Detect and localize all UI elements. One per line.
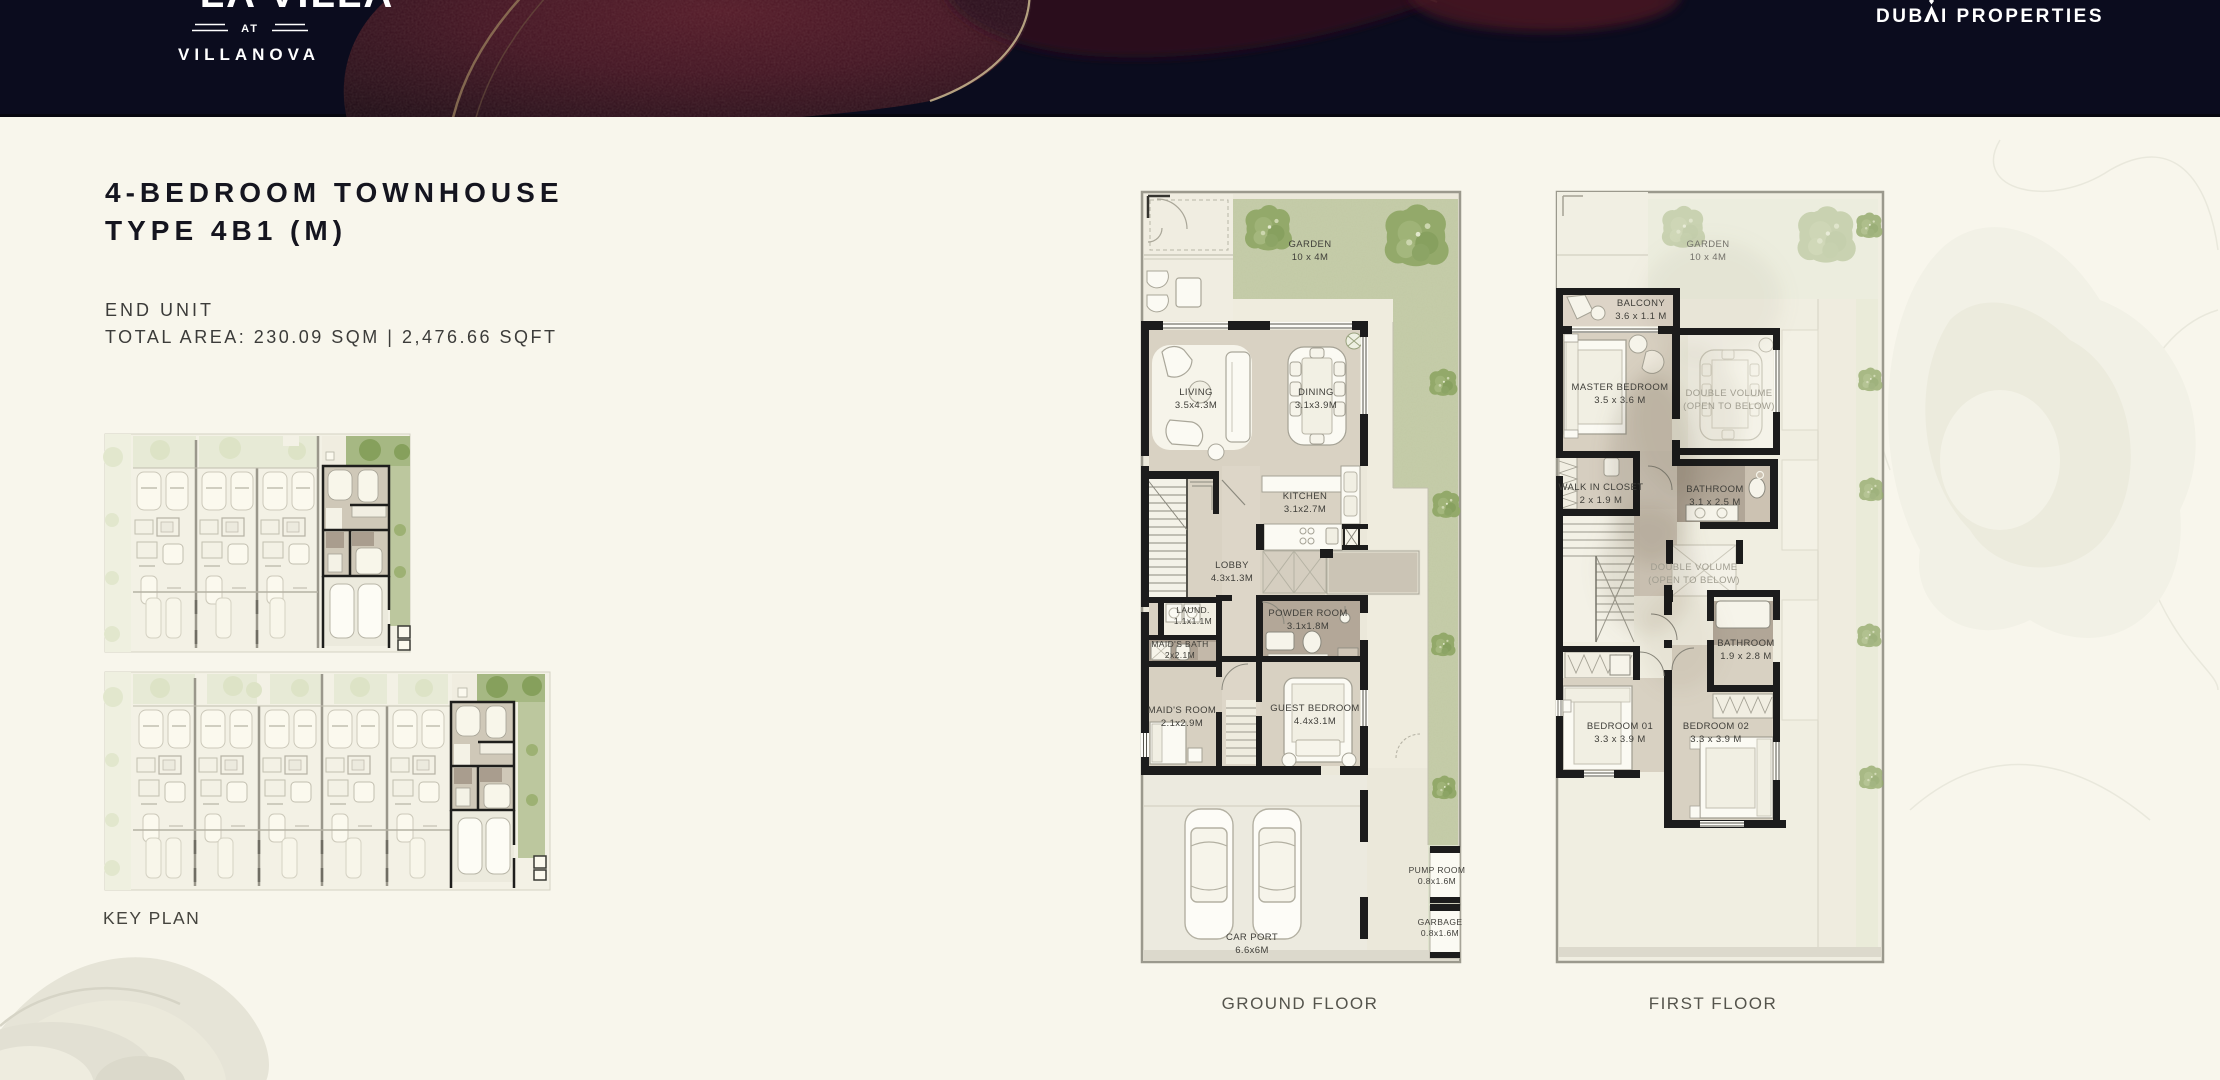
svg-text:10 x 4M: 10 x 4M [1292,252,1329,263]
svg-text:KITCHEN: KITCHEN [1283,491,1328,502]
svg-text:1.9 x 2.8 M: 1.9 x 2.8 M [1720,651,1771,662]
svg-text:AT: AT [241,23,259,35]
svg-text:3.5x4.3M: 3.5x4.3M [1175,400,1217,411]
svg-text:DINING: DINING [1298,387,1334,398]
svg-text:LIVING: LIVING [1179,387,1213,398]
svg-text:1.1x1.1M: 1.1x1.1M [1174,616,1212,626]
svg-text:3.6 x 1.1 M: 3.6 x 1.1 M [1615,311,1666,322]
svg-text:0.8x1.6M: 0.8x1.6M [1421,928,1459,938]
svg-text:MAID'S BATH: MAID'S BATH [1151,639,1208,649]
svg-text:CAR PORT: CAR PORT [1226,932,1278,943]
svg-text:POWDER ROOM: POWDER ROOM [1268,608,1347,619]
svg-text:GARBAGE: GARBAGE [1418,917,1463,927]
svg-text:3.1x1.8M: 3.1x1.8M [1287,621,1329,632]
svg-text:PUMP ROOM: PUMP ROOM [1409,865,1466,875]
svg-text:I PROPERTIES: I PROPERTIES [1941,6,2104,27]
svg-text:2 x 1.9 M: 2 x 1.9 M [1580,495,1623,506]
svg-text:4.4x3.1M: 4.4x3.1M [1294,716,1336,727]
svg-text:LOBBY: LOBBY [1215,560,1249,571]
svg-text:BEDROOM 02: BEDROOM 02 [1683,721,1749,732]
svg-text:BATHROOM: BATHROOM [1717,638,1774,649]
svg-text:GARDEN: GARDEN [1686,239,1729,250]
svg-text:6.6x6M: 6.6x6M [1235,945,1269,956]
svg-text:MAID'S ROOM: MAID'S ROOM [1148,705,1217,716]
svg-text:10 x 4M: 10 x 4M [1690,252,1727,263]
svg-text:2.1x2.9M: 2.1x2.9M [1161,718,1203,729]
svg-text:DOUBLE VOLUME: DOUBLE VOLUME [1650,562,1737,573]
svg-text:BALCONY: BALCONY [1617,298,1665,309]
svg-text:4.3x1.3M: 4.3x1.3M [1211,573,1253,584]
svg-text:(OPEN TO BELOW): (OPEN TO BELOW) [1683,401,1775,412]
svg-text:2x2.1M: 2x2.1M [1165,650,1195,660]
svg-text:3.1x3.9M: 3.1x3.9M [1295,400,1337,411]
svg-text:(OPEN TO BELOW): (OPEN TO BELOW) [1648,575,1740,586]
svg-text:3.1 x 2.5 M: 3.1 x 2.5 M [1689,497,1740,508]
svg-text:DUB: DUB [1876,6,1925,27]
svg-text:GUEST BEDROOM: GUEST BEDROOM [1270,703,1359,714]
svg-text:WALK IN CLOSET: WALK IN CLOSET [1559,482,1644,493]
svg-text:3.5 x 3.6 M: 3.5 x 3.6 M [1594,395,1645,406]
svg-text:LAUND.: LAUND. [1176,605,1210,615]
svg-text:0.8x1.6M: 0.8x1.6M [1418,876,1456,886]
svg-text:3.3 x 3.9 M: 3.3 x 3.9 M [1594,734,1645,745]
svg-text:DOUBLE VOLUME: DOUBLE VOLUME [1685,388,1772,399]
svg-text:3.3 x 3.9 M: 3.3 x 3.9 M [1690,734,1741,745]
svg-text:BEDROOM 01: BEDROOM 01 [1587,721,1653,732]
svg-text:MASTER BEDROOM: MASTER BEDROOM [1572,382,1669,393]
svg-text:3.1x2.7M: 3.1x2.7M [1284,504,1326,515]
svg-text:GARDEN: GARDEN [1288,239,1331,250]
svg-text:BATHROOM: BATHROOM [1686,484,1743,495]
